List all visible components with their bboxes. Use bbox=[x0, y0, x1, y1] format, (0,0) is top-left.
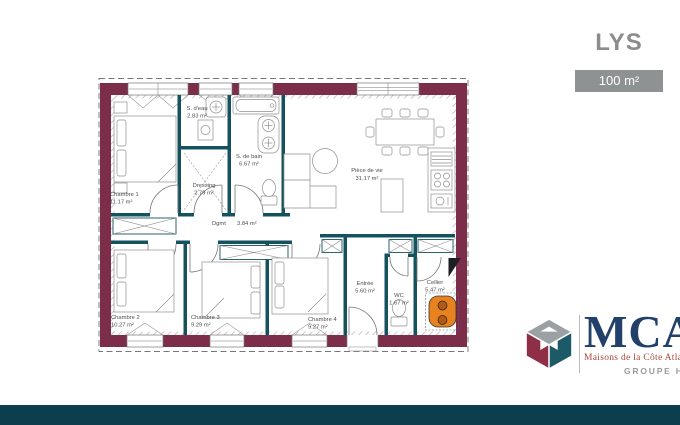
mca-cube-icon bbox=[522, 316, 576, 372]
room-label-wc: WC bbox=[394, 293, 404, 299]
room-label-dgmt: Dgmt bbox=[212, 221, 226, 227]
room-label-piece-de-vie: Pièce de vie bbox=[351, 168, 383, 174]
room-area-wc: 1.67 m² bbox=[389, 301, 409, 307]
room-label-chambre-3: Chambre 3 bbox=[191, 315, 220, 321]
toilet-s-de-bain bbox=[261, 180, 277, 206]
bed-chambre-2 bbox=[114, 250, 174, 312]
water-heater bbox=[426, 293, 459, 330]
dressing-storage bbox=[184, 153, 226, 210]
room-area-s-deau: 2.83 m² bbox=[187, 114, 207, 120]
double-sink bbox=[258, 116, 279, 153]
room-label-s-de-bain: S. de bain bbox=[236, 154, 262, 160]
room-label-s-deau: S. d'eau bbox=[186, 106, 207, 112]
room-label-chambre-1: Chambre 1 bbox=[110, 192, 139, 198]
bed-chambre-3 bbox=[202, 262, 260, 318]
kitchen-counter bbox=[428, 148, 455, 212]
room-area-dgmt: 3.84 m² bbox=[237, 221, 257, 227]
room-area-chambre-1: 11.17 m² bbox=[110, 200, 133, 206]
bed-chambre-1 bbox=[114, 102, 176, 193]
footer-bar bbox=[0, 405, 680, 425]
logo-group-label: GROUPE Hexaôm bbox=[584, 366, 680, 376]
room-label-entree: Entrée bbox=[356, 281, 373, 287]
room-label-dressing: Dressing bbox=[193, 183, 216, 189]
room-area-chambre-2: 10.27 m² bbox=[111, 323, 134, 329]
room-area-entree: 5.60 m² bbox=[355, 289, 375, 295]
mca-logo: MCA Maisons de la Côte Atlantique GROUPE… bbox=[521, 306, 680, 380]
logo-divider bbox=[579, 315, 580, 373]
bathtub bbox=[233, 97, 279, 114]
room-label-chambre-4: Chambre 4 bbox=[308, 317, 337, 323]
page-title: LYS bbox=[575, 29, 663, 57]
front-door bbox=[347, 307, 378, 351]
room-area-cellier: 5.47 m² bbox=[425, 288, 445, 294]
sink-s-deau bbox=[206, 97, 226, 117]
logo-tagline: Maisons de la Côte Atlantique bbox=[584, 353, 680, 363]
room-label-chambre-2: Chambre 2 bbox=[111, 315, 140, 321]
coffee-table bbox=[313, 149, 338, 174]
washer-s-deau bbox=[198, 120, 213, 140]
room-area-piece-de-vie: 31.17 m² bbox=[356, 176, 379, 182]
room-area-chambre-4: 9.27 m² bbox=[308, 325, 328, 331]
area-badge: 100 m² bbox=[575, 70, 663, 92]
room-area-chambre-3: 9.29 m² bbox=[191, 323, 211, 329]
logo-text: MCA bbox=[584, 308, 680, 356]
room-area-dressing: 2.79 m² bbox=[194, 191, 214, 197]
room-label-cellier: Cellier bbox=[427, 280, 443, 286]
bed-chambre-4 bbox=[272, 258, 328, 314]
kitchen-island bbox=[381, 179, 403, 212]
room-area-s-de-bain: 6.67 m² bbox=[239, 162, 259, 168]
brochure-page: Chambre 1 11.17 m² S. d'eau 2.83 m² Dres… bbox=[0, 0, 680, 425]
